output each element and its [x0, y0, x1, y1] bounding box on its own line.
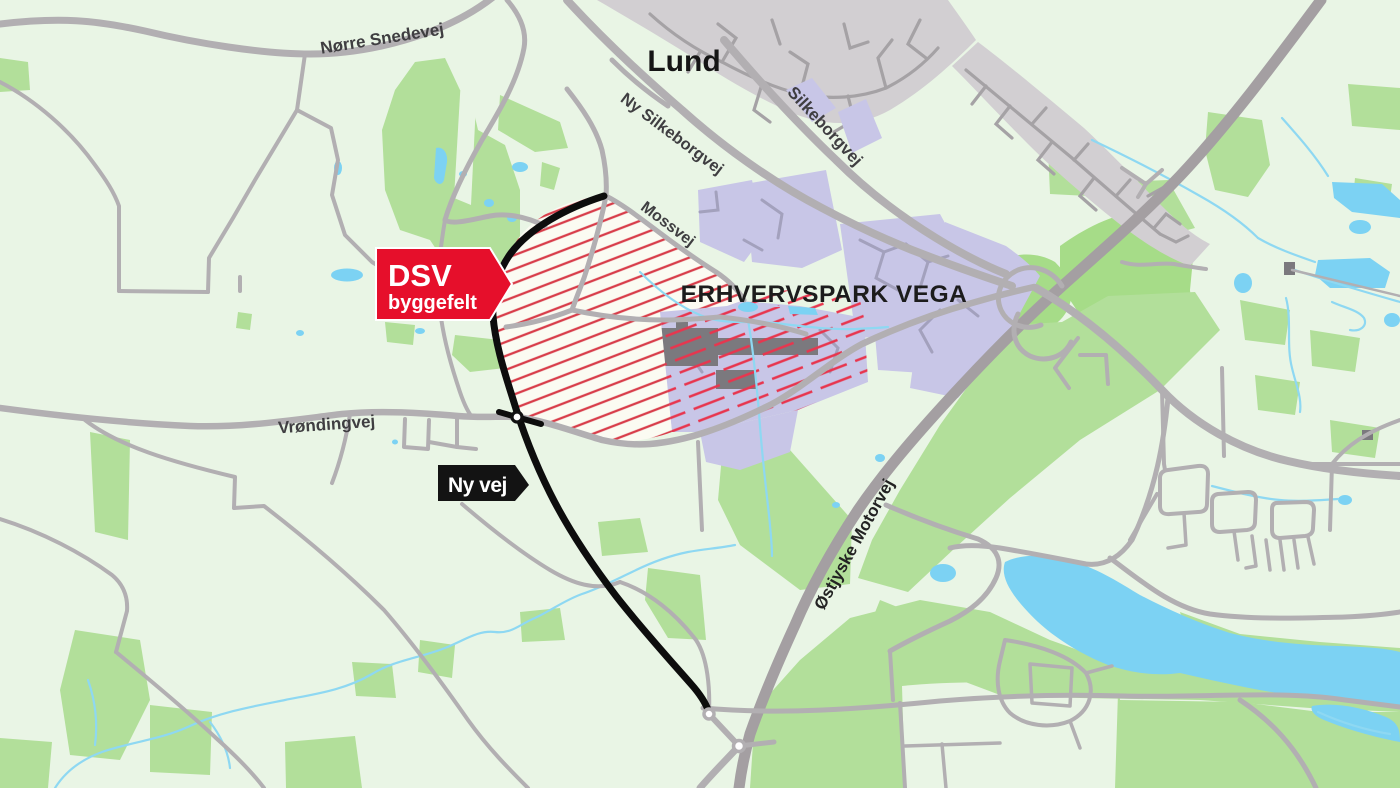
- svg-text:DSV: DSV: [388, 258, 452, 293]
- svg-text:Lund: Lund: [647, 45, 720, 78]
- svg-text:Ny vej: Ny vej: [448, 474, 507, 497]
- svg-text:ERHVERVSPARK VEGA: ERHVERVSPARK VEGA: [681, 281, 968, 308]
- svg-text:byggefelt: byggefelt: [388, 292, 477, 314]
